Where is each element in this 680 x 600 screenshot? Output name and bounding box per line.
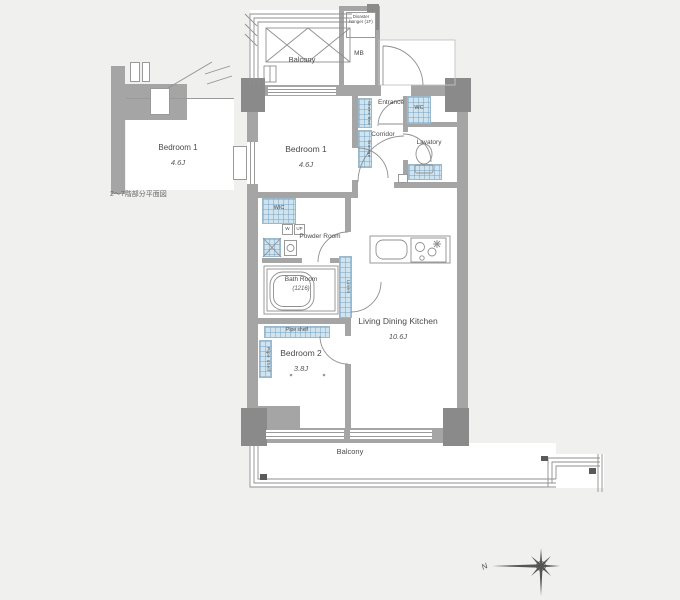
up-label: UP [294,226,305,231]
window-line [250,142,251,184]
entrance-label: Entrance [374,99,408,106]
linen-label: Linen [340,258,351,316]
inset-room-size: 4.6J [142,159,214,168]
washer-label: W [282,226,293,231]
exterior-sleeve-box [233,146,247,180]
compass-north-label: N [480,561,489,572]
powder-room-label: Powder Room [298,233,342,240]
bedroom1-size: 4.6J [270,161,342,170]
bedroom2-size: 3.8J [262,365,340,374]
wall-right [457,96,468,428]
inset-wall-block [111,84,187,120]
mb-label: MB [344,50,374,57]
wic-label: WIC [262,205,296,211]
ldk-size: 10.6J [342,333,454,342]
pipe-shelf-top-label: Pipe shelf [264,328,330,334]
pillar-bottom-left [241,408,267,446]
wc-label: WC [407,105,431,111]
balcony-bottom-floor [250,443,556,487]
door-bath [302,258,330,263]
inset-top-line [126,98,234,99]
balcony-bottom-label: Balcony [322,448,378,457]
vanity-box [284,240,297,256]
door-entrance-opening [381,85,411,96]
inset-meter-box [130,62,140,82]
balcony-top-label: Balcony [272,56,332,65]
inset-wall-notch [150,88,170,115]
corridor-label: Corridor [362,131,404,138]
window-line [350,436,432,437]
shaft-wall-left [339,6,344,86]
window-line [350,432,432,433]
window-line [266,436,344,437]
bedroom2-label: Bedroom 2 [262,349,340,359]
balcony-side-floor [546,454,604,488]
pillar-top-right [445,78,471,112]
inset-caption: 2〜7階部分平面図 [110,191,220,199]
shoes-box-label: Shoes Box [359,99,371,127]
window-line [266,432,344,433]
wall-bedroom2-top [258,318,351,324]
inset-meter-box [142,62,150,82]
window-line [254,142,255,184]
ldk-label: Living Dining Kitchen [342,317,454,327]
window-left-wall [247,142,258,184]
bath-room-label: Bath Room [274,276,328,283]
bath-room-size: (1216) [274,286,328,293]
lavatory-storage-box [398,174,408,183]
bedroom1-label: Bedroom 1 [270,145,342,155]
entrance-porch-floor [379,40,455,85]
floor-plan: Bedroom 1 4.6J 2〜7階部分平面図 [0,0,680,600]
lavatory-label: Lavatory [404,139,454,146]
lavatory-pedestal-tile [408,164,442,180]
pillar-bottom-right [443,408,469,446]
opening-corridor-ldk [358,182,394,188]
window-line [268,92,336,93]
pillar-top-left [241,78,265,112]
compass-icon: N [480,548,560,596]
window-line [268,89,336,90]
inset-room-label: Bedroom 1 [142,143,214,152]
disaster-hatch-label: Disaster hanger (1F) [347,14,375,25]
washer-pan-tile [263,238,281,257]
